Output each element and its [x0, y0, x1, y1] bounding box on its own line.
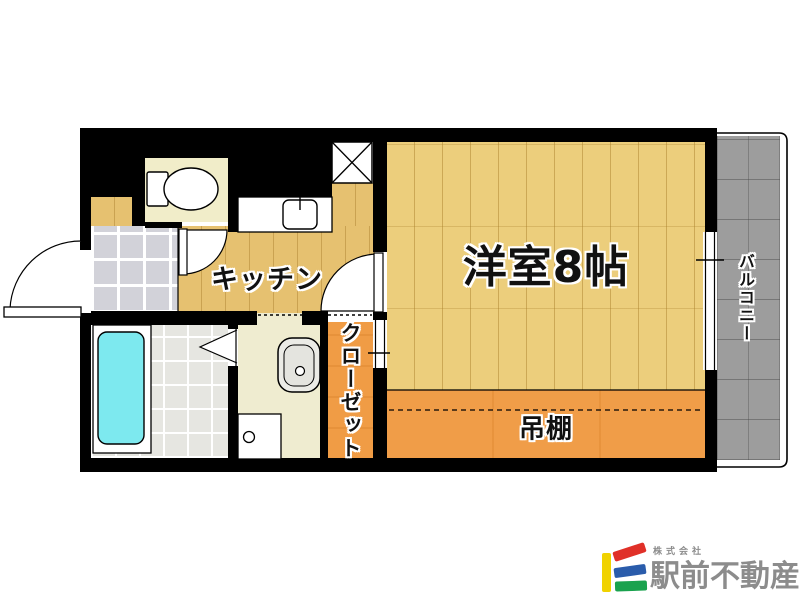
- closet-label: クローゼット: [335, 322, 365, 460]
- closet-top-gap: [322, 311, 373, 322]
- wall-right-of-toilet: [228, 142, 238, 232]
- floor-plan-page: 洋室8帖 キッチン 吊棚 クローゼット バルコニー 株式会社 駅前不動産: [0, 0, 800, 600]
- wall-kitchen-washroom-b: [302, 311, 322, 325]
- toilet-room-floor: [145, 158, 228, 222]
- wall-bath-washroom-bot: [228, 366, 238, 458]
- kitchen-floor-strip: [332, 183, 375, 226]
- company-name: 駅前不動産: [650, 551, 800, 595]
- wall-bath-washroom-top: [228, 311, 238, 331]
- wall-above-toilet: [145, 142, 228, 158]
- balcony-label: バルコニー: [733, 253, 757, 343]
- bathroom-floor: [91, 313, 228, 458]
- shelf-label: 吊棚: [519, 409, 573, 446]
- wall-left-lower: [80, 313, 91, 472]
- wall-block-topleft: [91, 142, 145, 197]
- wall-right-lower: [705, 370, 717, 458]
- entrance-door-swing: [4, 241, 81, 317]
- logo-green-bar: [615, 580, 647, 591]
- wall-closet-room: [373, 368, 387, 458]
- logo-red-bar: [612, 542, 646, 562]
- pipe-shaft-icon: [332, 142, 372, 183]
- closet-opening: [373, 320, 387, 368]
- kitchen-label: キッチン: [211, 258, 323, 297]
- wall-below-toilet: [145, 222, 182, 228]
- wall-above-counter: [238, 142, 332, 197]
- entrance-tile-floor: [91, 226, 178, 313]
- logo-blue-bar: [613, 564, 646, 578]
- wall-left-of-toilet: [132, 197, 145, 226]
- wall-kitchen-room: [373, 142, 387, 252]
- company-logo: 株式会社 駅前不動産: [600, 538, 796, 598]
- washroom-floor: [238, 313, 320, 458]
- hallway-wood-block: [91, 197, 132, 226]
- balcony-window-opening: [703, 232, 717, 370]
- wall-right-upper: [705, 128, 717, 232]
- wall-kitchen-room-low: [373, 312, 387, 320]
- wall-washroom-closet: [320, 311, 328, 458]
- main-room-label: 洋室8帖: [463, 231, 630, 295]
- logo-yellow-bar: [602, 553, 611, 592]
- wall-left-upper: [80, 142, 91, 250]
- wall-bottom: [80, 458, 717, 472]
- wall-top: [80, 128, 717, 142]
